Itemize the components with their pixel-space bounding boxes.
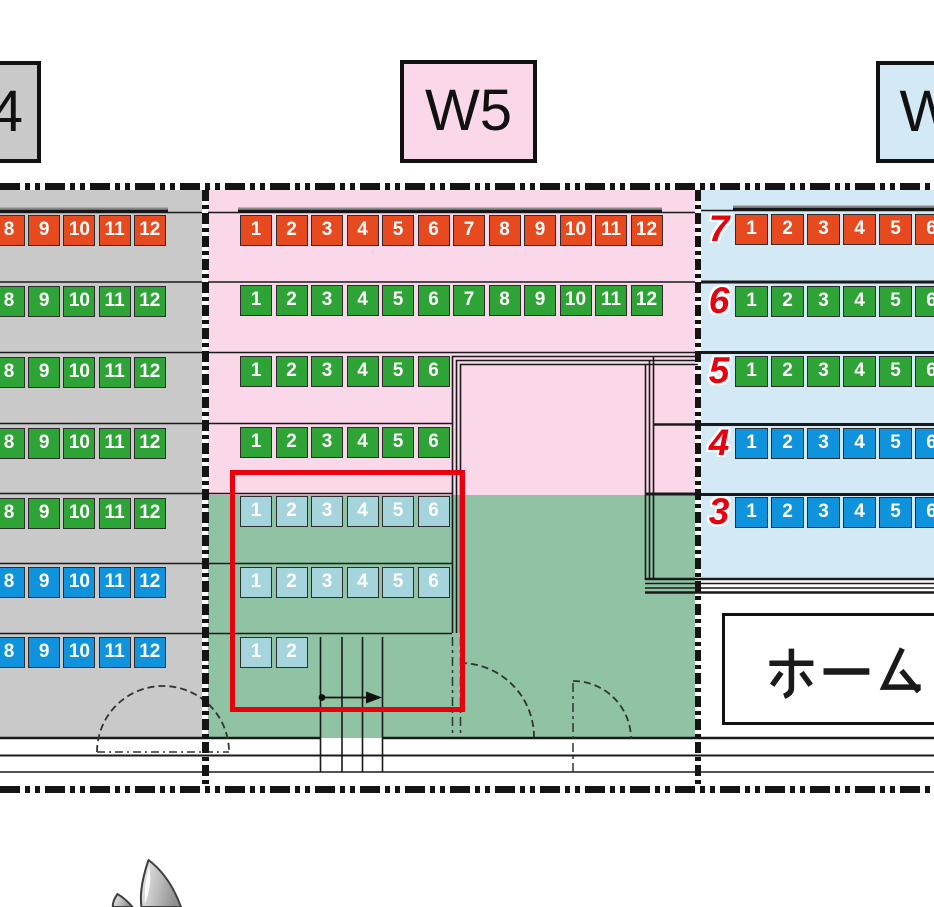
seat-right-row2-3[interactable]: 3: [807, 286, 840, 317]
seat-left-row7-12[interactable]: 12: [134, 637, 166, 668]
row-number-label-7: 7: [699, 209, 739, 249]
section-label-w6[interactable]: W6: [876, 61, 934, 163]
seat-middle-row1-5[interactable]: 5: [382, 215, 414, 246]
seat-middle-row2-11[interactable]: 11: [595, 285, 627, 316]
seat-left-row5-11[interactable]: 11: [99, 498, 131, 529]
seat-middle-row3-2[interactable]: 2: [276, 356, 308, 387]
seat-middle-row2-12[interactable]: 12: [631, 285, 663, 316]
compass-needle: [113, 860, 181, 907]
seat-left-row1-9[interactable]: 9: [28, 215, 60, 246]
seat-middle-row3-5[interactable]: 5: [382, 356, 414, 387]
seat-right-row1-5[interactable]: 5: [879, 214, 912, 245]
seat-middle-row1-9[interactable]: 9: [524, 215, 556, 246]
seat-left-row6-10[interactable]: 10: [63, 567, 95, 598]
seat-middle-row2-7[interactable]: 7: [453, 285, 485, 316]
divider-w4-w5: [202, 190, 209, 786]
seat-left-row4-12[interactable]: 12: [134, 428, 166, 459]
seat-right-row5-5[interactable]: 5: [879, 497, 912, 528]
seat-middle-row4-5[interactable]: 5: [382, 427, 414, 458]
seat-right-row3-4[interactable]: 4: [843, 356, 876, 387]
seat-right-row5-2[interactable]: 2: [771, 497, 804, 528]
home-sign-text: ホーム: [725, 616, 726, 617]
seat-right-row4-2[interactable]: 2: [771, 428, 804, 459]
seat-left-row2-11[interactable]: 11: [99, 286, 131, 317]
seat-middle-row3-6[interactable]: 6: [418, 356, 450, 387]
seat-left-row6-9[interactable]: 9: [28, 567, 60, 598]
seat-left-row6-11[interactable]: 11: [99, 567, 131, 598]
seat-middle-row4-6[interactable]: 6: [418, 427, 450, 458]
seat-right-row2-2[interactable]: 2: [771, 286, 804, 317]
seat-left-row4-10[interactable]: 10: [63, 428, 95, 459]
seat-left-row7-10[interactable]: 10: [63, 637, 95, 668]
seat-middle-row1-2[interactable]: 2: [276, 215, 308, 246]
seat-middle-row2-10[interactable]: 10: [560, 285, 592, 316]
bottom-boundary-dashed: [0, 786, 934, 793]
home-sign: ホーム: [722, 613, 934, 725]
seat-middle-row2-6[interactable]: 6: [418, 285, 450, 316]
seat-middle-row4-1[interactable]: 1: [240, 427, 272, 458]
seat-right-row1-1[interactable]: 1: [735, 214, 768, 245]
home-sign-glyphs: [763, 643, 928, 700]
seat-left-row5-9[interactable]: 9: [28, 498, 60, 529]
seat-left-row2-10[interactable]: 10: [63, 286, 95, 317]
seat-middle-row2-3[interactable]: 3: [311, 285, 343, 316]
seat-middle-row3-1[interactable]: 1: [240, 356, 272, 387]
seat-middle-row4-2[interactable]: 2: [276, 427, 308, 458]
seat-left-row2-8[interactable]: 8: [0, 286, 25, 317]
lower-wall-bundle: [645, 579, 934, 593]
seat-left-row1-8[interactable]: 8: [0, 215, 25, 246]
seat-right-row3-2[interactable]: 2: [771, 356, 804, 387]
seat-right-row2-5[interactable]: 5: [879, 286, 912, 317]
corridor-lines: [0, 738, 934, 772]
seat-right-row4-6[interactable]: 6: [915, 428, 934, 459]
seat-right-row4-4[interactable]: 4: [843, 428, 876, 459]
seat-right-row3-3[interactable]: 3: [807, 356, 840, 387]
seat-left-row1-12[interactable]: 12: [134, 215, 166, 246]
seat-left-row6-12[interactable]: 12: [134, 567, 166, 598]
seat-right-row1-3[interactable]: 3: [807, 214, 840, 245]
seat-left-row4-8[interactable]: 8: [0, 428, 25, 459]
seat-left-row4-11[interactable]: 11: [99, 428, 131, 459]
seat-middle-row3-4[interactable]: 4: [347, 356, 379, 387]
seat-middle-row1-8[interactable]: 8: [489, 215, 521, 246]
seat-middle-row1-1[interactable]: 1: [240, 215, 272, 246]
seat-left-row7-9[interactable]: 9: [28, 637, 60, 668]
seat-middle-row1-6[interactable]: 6: [418, 215, 450, 246]
seat-left-row4-9[interactable]: 9: [28, 428, 60, 459]
seating-map: W4 W5 W6 8910111289101112891011128910111…: [0, 0, 934, 907]
divider-w5-w6: [695, 190, 702, 786]
seat-left-row3-11[interactable]: 11: [99, 357, 131, 388]
seat-right-row5-4[interactable]: 4: [843, 497, 876, 528]
seat-right-row5-6[interactable]: 6: [915, 497, 934, 528]
seat-left-row1-10[interactable]: 10: [63, 215, 95, 246]
seat-left-row7-11[interactable]: 11: [99, 637, 131, 668]
seat-middle-row2-4[interactable]: 4: [347, 285, 379, 316]
seat-right-row2-6[interactable]: 6: [915, 286, 934, 317]
highlighted-seats-box: [230, 470, 465, 712]
seat-middle-row2-8[interactable]: 8: [489, 285, 521, 316]
seat-right-row1-6[interactable]: 6: [915, 214, 934, 245]
seat-left-row2-12[interactable]: 12: [134, 286, 166, 317]
seat-right-row2-4[interactable]: 4: [843, 286, 876, 317]
seat-middle-row1-12[interactable]: 12: [631, 215, 663, 246]
seat-right-row1-4[interactable]: 4: [843, 214, 876, 245]
seat-right-row3-6[interactable]: 6: [915, 356, 934, 387]
seat-middle-row1-7[interactable]: 7: [453, 215, 485, 246]
seat-middle-row1-4[interactable]: 4: [347, 215, 379, 246]
seat-left-row2-9[interactable]: 9: [28, 286, 60, 317]
seat-left-row1-11[interactable]: 11: [99, 215, 131, 246]
seat-middle-row2-2[interactable]: 2: [276, 285, 308, 316]
seat-left-row3-12[interactable]: 12: [134, 357, 166, 388]
seat-right-row2-1[interactable]: 1: [735, 286, 768, 317]
seat-right-row4-3[interactable]: 3: [807, 428, 840, 459]
door-arc-right: [573, 681, 631, 739]
seat-right-row5-1[interactable]: 1: [735, 497, 768, 528]
seat-middle-row2-9[interactable]: 9: [524, 285, 556, 316]
seat-left-row3-10[interactable]: 10: [63, 357, 95, 388]
section-label-w5[interactable]: W5: [400, 60, 537, 163]
seat-middle-row3-3[interactable]: 3: [311, 356, 343, 387]
seat-left-row7-8[interactable]: 8: [0, 637, 25, 668]
seat-left-row3-8[interactable]: 8: [0, 357, 25, 388]
door-arc-room: [460, 663, 534, 737]
row-number-label-3: 3: [699, 492, 739, 532]
seat-right-row4-5[interactable]: 5: [879, 428, 912, 459]
seat-right-row1-2[interactable]: 2: [771, 214, 804, 245]
seat-middle-row1-11[interactable]: 11: [595, 215, 627, 246]
row-number-label-5: 5: [699, 351, 739, 391]
row-number-label-6: 6: [699, 281, 739, 321]
seat-left-row6-8[interactable]: 8: [0, 567, 25, 598]
top-boundary-dashed: [0, 183, 934, 190]
section-label-w4[interactable]: W4: [0, 61, 41, 163]
row-number-label-4: 4: [699, 423, 739, 463]
seat-right-row3-5[interactable]: 5: [879, 356, 912, 387]
seat-left-row5-8[interactable]: 8: [0, 498, 25, 529]
door-arc-left: [97, 686, 229, 752]
seat-right-row5-3[interactable]: 3: [807, 497, 840, 528]
seat-middle-row1-3[interactable]: 3: [311, 215, 343, 246]
seat-left-row5-10[interactable]: 10: [63, 498, 95, 529]
seat-right-row4-1[interactable]: 1: [735, 428, 768, 459]
seat-middle-row4-3[interactable]: 3: [311, 427, 343, 458]
seat-middle-row2-1[interactable]: 1: [240, 285, 272, 316]
seat-middle-row1-10[interactable]: 10: [560, 215, 592, 246]
seat-right-row3-1[interactable]: 1: [735, 356, 768, 387]
seat-middle-row2-5[interactable]: 5: [382, 285, 414, 316]
seat-left-row5-12[interactable]: 12: [134, 498, 166, 529]
seat-left-row3-9[interactable]: 9: [28, 357, 60, 388]
seat-middle-row4-4[interactable]: 4: [347, 427, 379, 458]
